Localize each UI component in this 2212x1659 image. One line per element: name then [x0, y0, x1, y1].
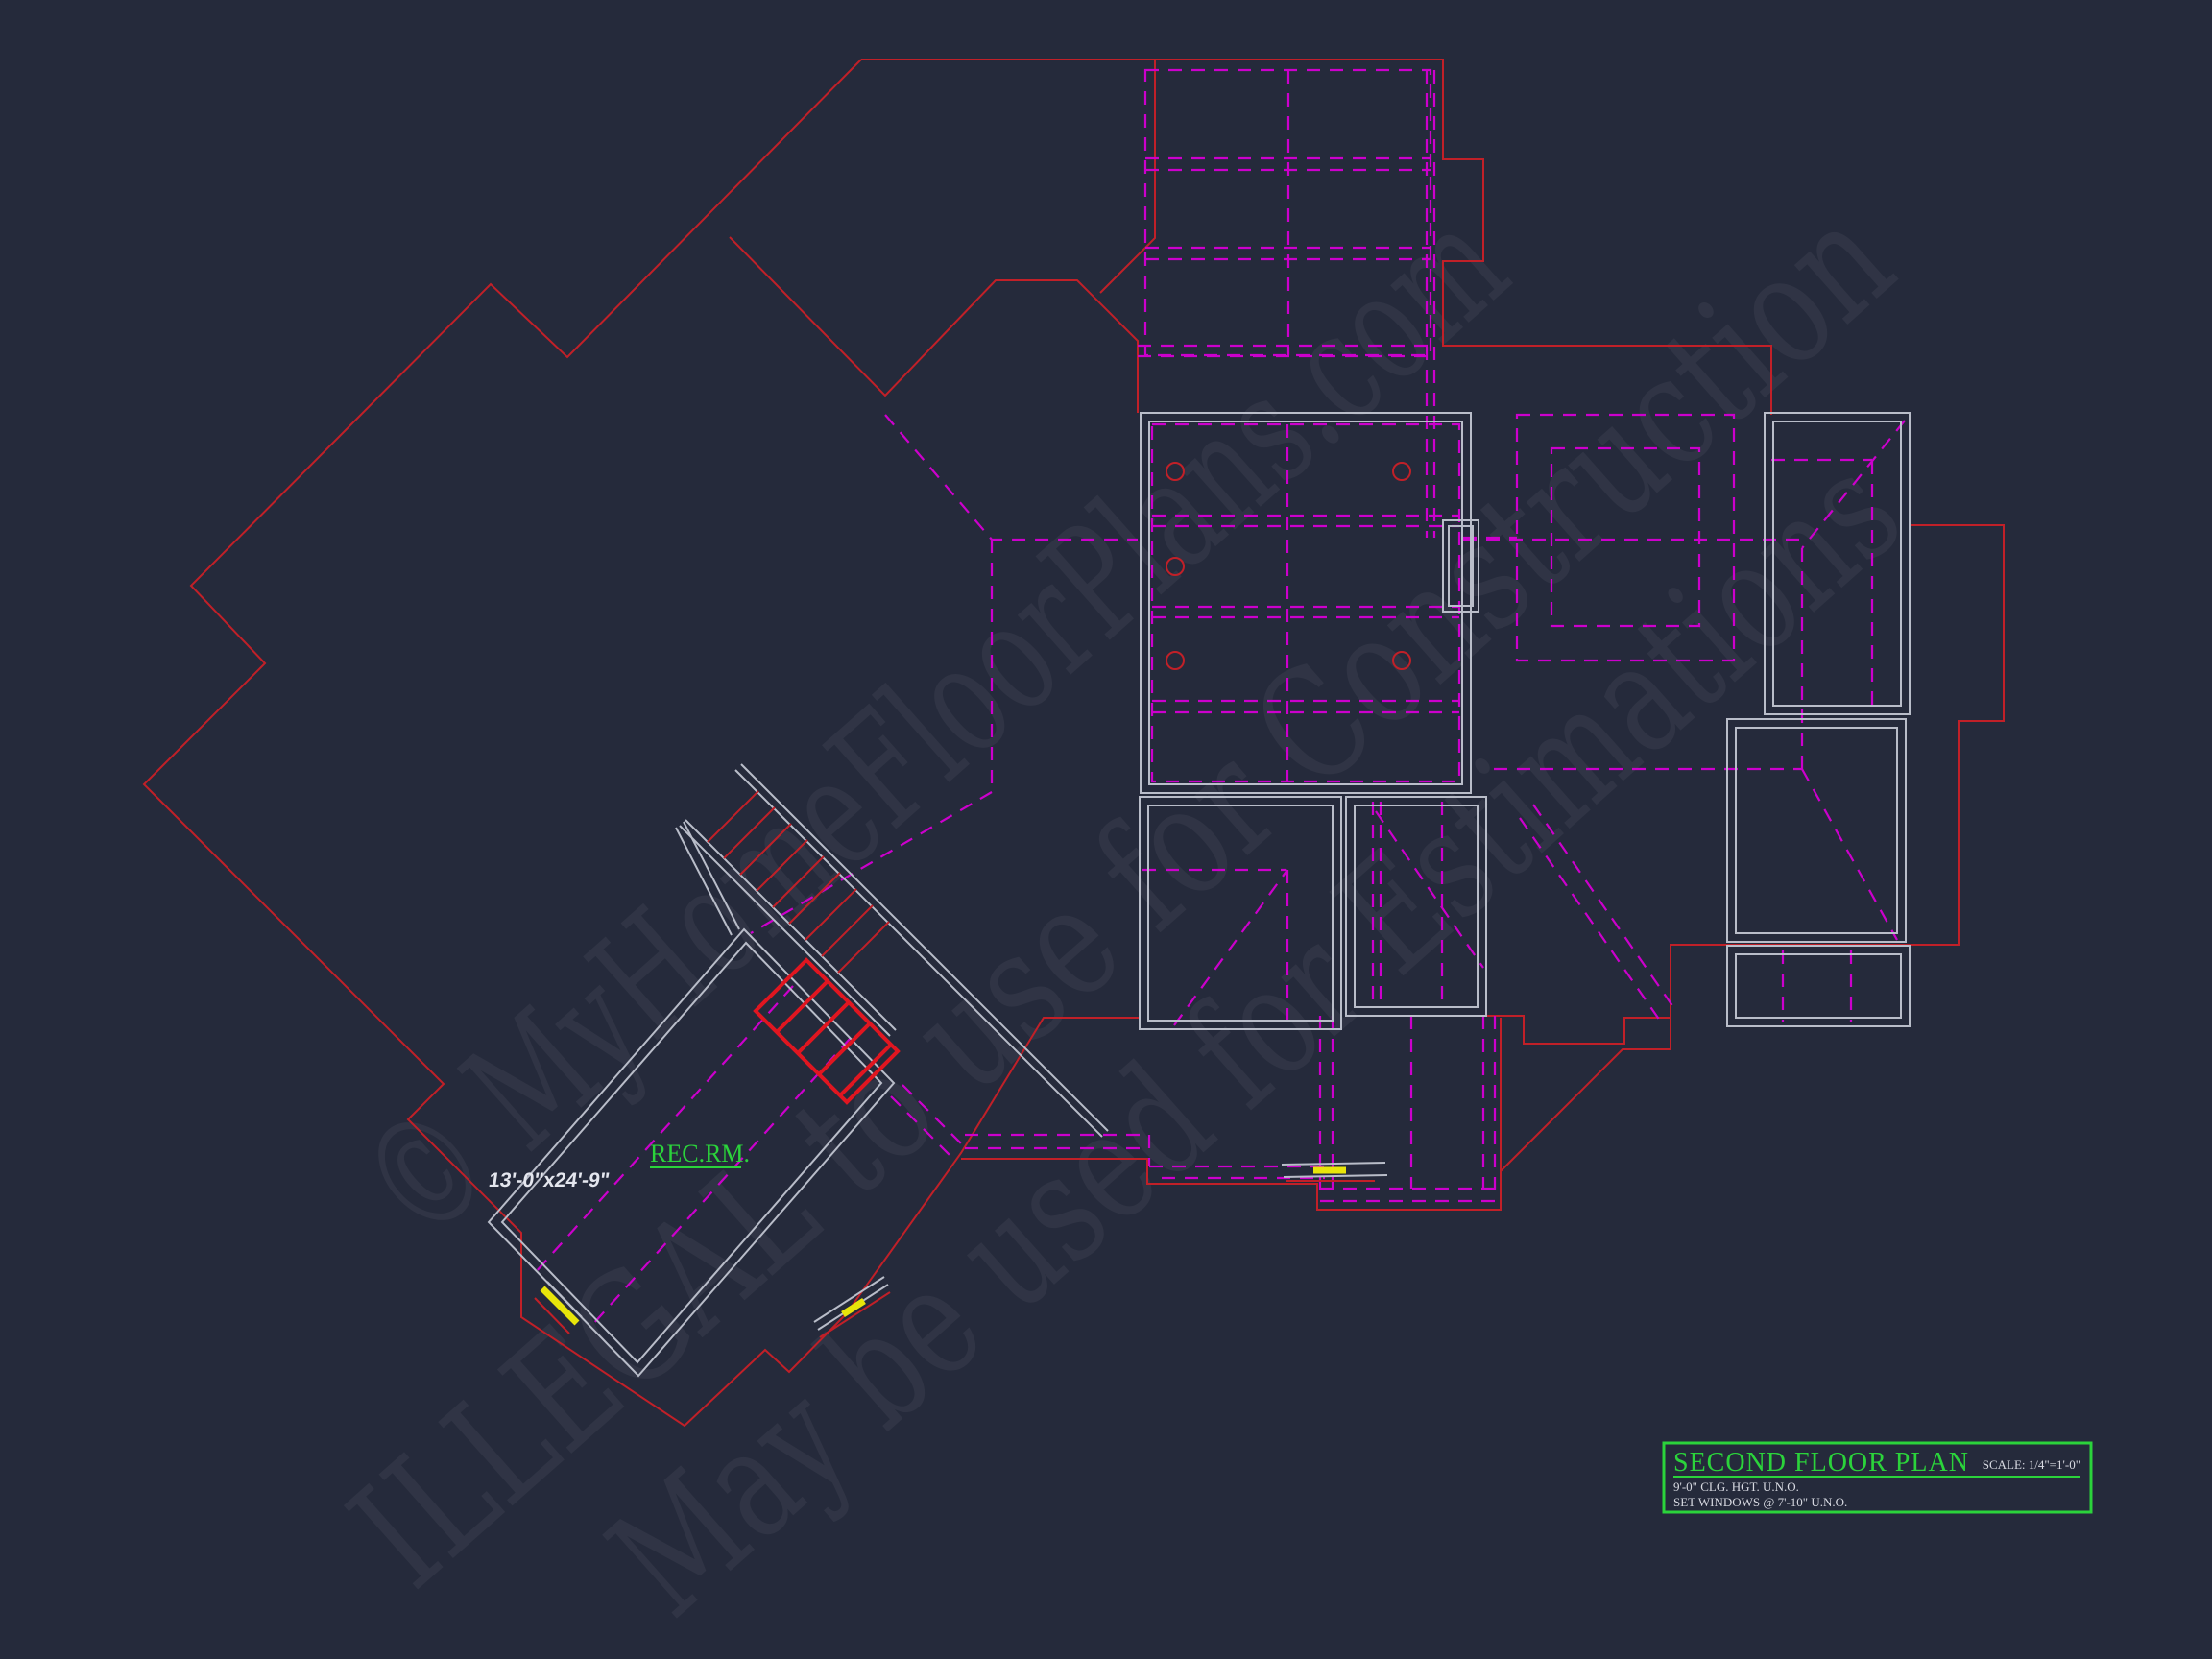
title-block: SECOND FLOOR PLAN SCALE: 1/4"=1'-0" 9'-0… [1664, 1443, 2091, 1512]
rec-room-dimensions: 13'-0"x24'-9" [488, 1169, 612, 1191]
roof-step-right-lower [1501, 945, 1671, 1171]
floor-plan-canvas: © MyHomeFloorPlans.com ILLEGAL to use fo… [0, 0, 2212, 1659]
watermark-line-2: ILLEGAL to use for Construction [318, 170, 1925, 1622]
title-block-scale: SCALE: 1/4"=1'-0" [1983, 1457, 2080, 1472]
right-middle-room [1727, 719, 1906, 942]
title-block-title: SECOND FLOOR PLAN [1673, 1448, 1969, 1478]
title-block-note-1: 9'-0" CLG. HGT. U.N.O. [1673, 1479, 1799, 1494]
title-block-note-2: SET WINDOWS @ 7'-10" U.N.O. [1673, 1495, 1847, 1509]
floor-plan-sheet: © MyHomeFloorPlans.com ILLEGAL to use fo… [0, 0, 2212, 1659]
right-bottom-room [1727, 946, 1910, 1026]
garage-roof-left-edge [1100, 60, 1155, 293]
roof-ridge-center [730, 237, 1138, 413]
rec-room-name: REC.RM. [650, 1140, 750, 1167]
watermark: © MyHomeFloorPlans.com ILLEGAL to use fo… [318, 170, 1933, 1650]
